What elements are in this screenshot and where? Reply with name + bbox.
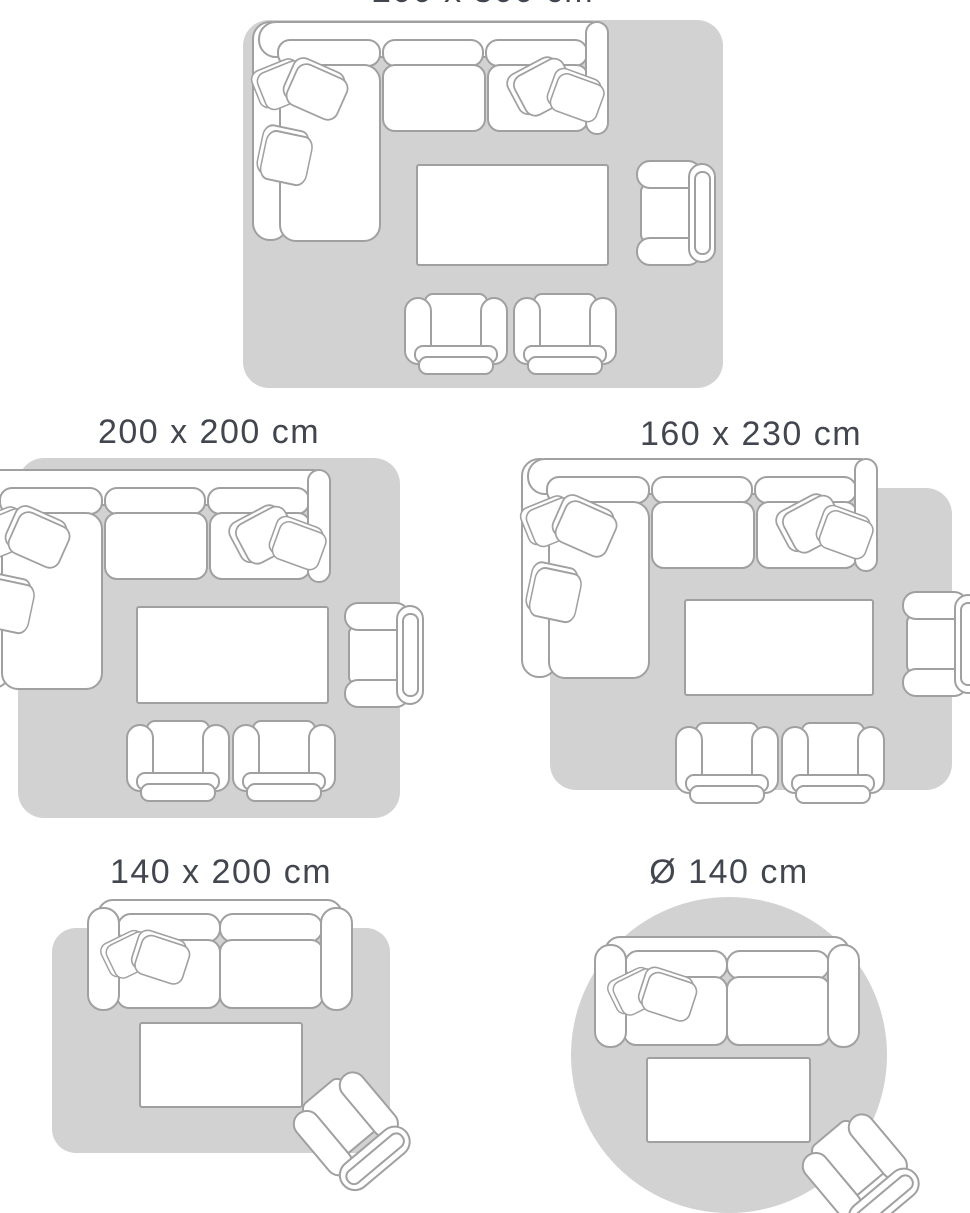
panel-diameter-140-illustration (571, 897, 926, 1213)
footstool-chair-icon (127, 721, 229, 801)
panel-200x200-illustration (0, 458, 423, 818)
panel-140x200-illustration (52, 900, 417, 1197)
rug-layouts-illustration (0, 0, 970, 1213)
panel-200x300-illustration (243, 20, 723, 388)
footstool-chair-icon (405, 294, 507, 374)
coffee-table-icon (685, 600, 873, 695)
armchair-icon (637, 161, 715, 265)
two-seat-sofa-icon (595, 937, 859, 1047)
panel-160x230-illustration (518, 459, 970, 803)
armchair-icon (345, 603, 423, 707)
rug-size-guide: 200 x 300 cm 200 x 200 cm 160 x 230 cm 1… (0, 0, 970, 1213)
coffee-table-icon (140, 1023, 302, 1107)
coffee-table-icon (137, 607, 328, 703)
footstool-chair-icon (676, 723, 778, 803)
armchair-icon (903, 592, 970, 696)
coffee-table-icon (417, 165, 608, 265)
footstool-chair-icon (233, 721, 335, 801)
footstool-chair-icon (514, 294, 616, 374)
coffee-table-icon (647, 1058, 810, 1142)
two-seat-sofa-icon (88, 900, 352, 1010)
footstool-chair-icon (782, 723, 884, 803)
